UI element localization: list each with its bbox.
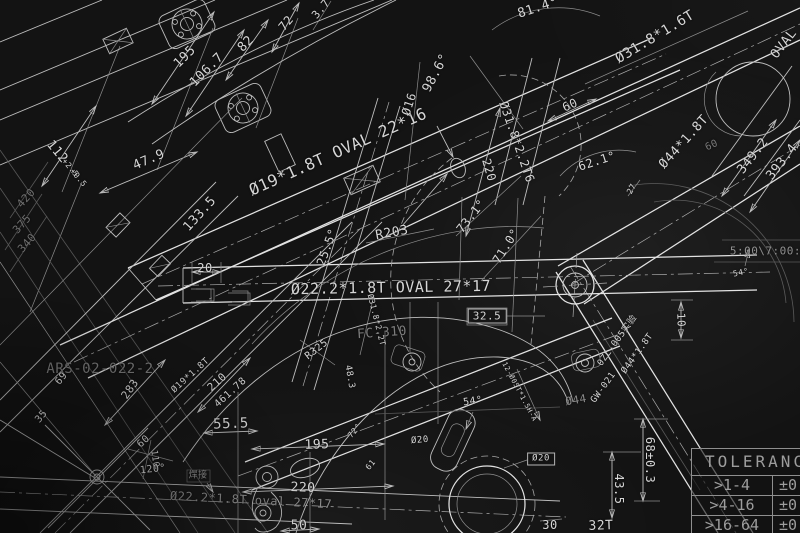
dim-label: 283 — [119, 377, 140, 401]
dim-label: 10 — [675, 313, 686, 328]
tolerance-table: TOLERANCE >1-4 ±0 >4-16 ±0 >16-64 ±0 — [691, 448, 800, 533]
angle-label: 72° — [347, 422, 363, 439]
dim-label: 3.7 — [310, 0, 332, 21]
dim-label: 32.5 — [468, 309, 507, 324]
dim-label: 55.5 — [213, 416, 249, 431]
note-label: 5:00\7:00:2 — [730, 246, 800, 257]
tube-spec-label: Ø19*1.8T — [170, 357, 211, 395]
dim-label: 20 — [197, 262, 212, 274]
tolerance-range: >16-64 — [692, 516, 773, 533]
dim-label: Ø20 — [411, 436, 429, 447]
dim-label: 43.5 — [613, 474, 625, 505]
radius-label: R325 — [304, 338, 331, 362]
dim-label: 133.5 — [181, 194, 219, 234]
tolerance-table-row: >4-16 ±0 — [692, 496, 800, 516]
note-label: 12-Ø05T*1.5H-A — [500, 361, 537, 423]
dim-label: 50 — [291, 520, 308, 533]
tolerance-range: >4-16 — [692, 496, 773, 515]
dim-label: 35 — [34, 409, 50, 425]
tube-spec-label: Ø31.8*2.2T6 — [497, 100, 536, 184]
tube-spec-label: Ø19*1.8T OVAL 22*16 — [247, 106, 429, 199]
tube-spec-label: Ø44*1.8T — [620, 332, 655, 376]
dim-label: 61 — [365, 458, 378, 471]
dim-label: 220 — [290, 481, 315, 495]
tolerance-table-row: >16-64 ±0 — [692, 516, 800, 533]
angle-label: 54° — [732, 267, 749, 278]
dim-label: 48.3 — [343, 365, 356, 390]
dim-label: 393.4 — [764, 142, 800, 183]
tube-spec-label: Ø22.2*1.8T OVAL 27*17 — [291, 279, 491, 297]
blueprint-canvas: 195106.782112+2.5+0.547.9723.74203753401… — [0, 0, 800, 533]
gear-label: 32T — [588, 519, 613, 533]
dim-label: 68±0.3 — [644, 437, 656, 483]
angle-label: 62.1° — [577, 149, 617, 172]
dim-label: 60 — [704, 139, 720, 153]
dim-label: 47.9 — [131, 148, 167, 173]
dim-label: 72 — [276, 13, 295, 33]
tolerance-label: +0.5 — [68, 167, 88, 188]
labels-layer: 195106.782112+2.5+0.547.9723.74203753401… — [0, 0, 800, 533]
radius-label: R203 — [374, 224, 409, 243]
dim-label: Ø20 — [527, 453, 555, 466]
dim-label: 82 — [236, 34, 257, 55]
dim-label: Ø44 — [565, 393, 588, 408]
angle-label: 120° — [140, 464, 167, 477]
tolerance-range: >1-4 — [692, 476, 773, 495]
angle-label: 81.4° — [516, 0, 560, 21]
angle-label: 73.1° — [454, 197, 487, 235]
dim-label: 420 — [15, 186, 37, 209]
dim-label: 30 — [542, 519, 557, 531]
angle-label: 98.6° — [420, 52, 451, 95]
tube-spec-label: OVAL — [769, 27, 800, 61]
tube-spec-label: Ø31.8*1.6T — [613, 8, 697, 66]
weld-note-label: 焊接 — [188, 472, 207, 481]
dim-label: 27 — [626, 182, 638, 195]
angle-label: 71.0° — [491, 226, 522, 265]
tolerance-value: ±0 — [773, 476, 800, 495]
tolerance-value: ±0 — [773, 516, 800, 533]
angle-label: 25.5° — [315, 227, 339, 267]
tolerance-table-row: >1-4 ±0 — [692, 476, 800, 496]
tube-spec-label: Ø44*1.8T — [657, 113, 711, 171]
dim-label: 195 — [304, 438, 329, 452]
tolerance-table-header: TOLERANCE — [692, 449, 800, 476]
dim-label: 195 — [172, 44, 199, 71]
part-number-label: GW-021 — [590, 371, 618, 405]
dim-label: 60 — [136, 434, 152, 450]
angle-label: 54° — [463, 396, 484, 409]
dim-label: 220 — [480, 157, 498, 183]
dim-label: 60 — [561, 96, 580, 113]
tolerance-value: ±0 — [773, 496, 800, 515]
